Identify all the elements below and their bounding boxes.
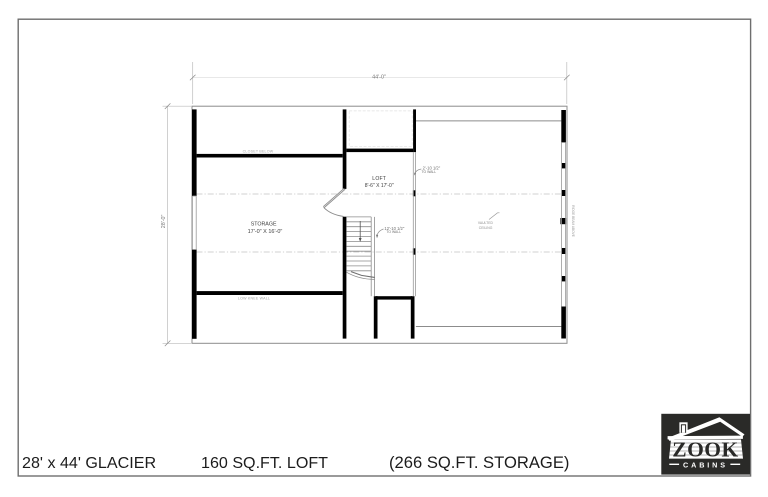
svg-text:160 SQ.FT. LOFT: 160 SQ.FT. LOFT (201, 454, 328, 472)
svg-text:CABINS: CABINS (683, 460, 728, 469)
svg-text:17'-0" X 16'-0": 17'-0" X 16'-0" (248, 229, 283, 235)
svg-text:TO WALL: TO WALL (422, 170, 437, 174)
svg-text:44'-0": 44'-0" (372, 74, 386, 80)
svg-text:(266 SQ.FT. STORAGE): (266 SQ.FT. STORAGE) (389, 453, 569, 472)
svg-text:CLOSET BELOW: CLOSET BELOW (243, 150, 274, 154)
svg-text:28' x 44' GLACIER: 28' x 44' GLACIER (22, 454, 156, 472)
svg-text:RIDGE BEAM ABOVE: RIDGE BEAM ABOVE (571, 205, 575, 237)
svg-text:LOFT: LOFT (372, 176, 386, 182)
svg-text:VAULTED: VAULTED (478, 221, 494, 225)
svg-text:CEILING: CEILING (479, 226, 493, 230)
svg-text:LOW KNEE WALL: LOW KNEE WALL (238, 296, 270, 300)
svg-text:8'-6" X 17'-0": 8'-6" X 17'-0" (365, 183, 394, 189)
svg-text:ZOOK: ZOOK (672, 438, 739, 462)
svg-text:TO WALL: TO WALL (386, 230, 401, 234)
svg-text:28'-0": 28'-0" (161, 214, 167, 228)
svg-text:STORAGE: STORAGE (251, 221, 277, 227)
